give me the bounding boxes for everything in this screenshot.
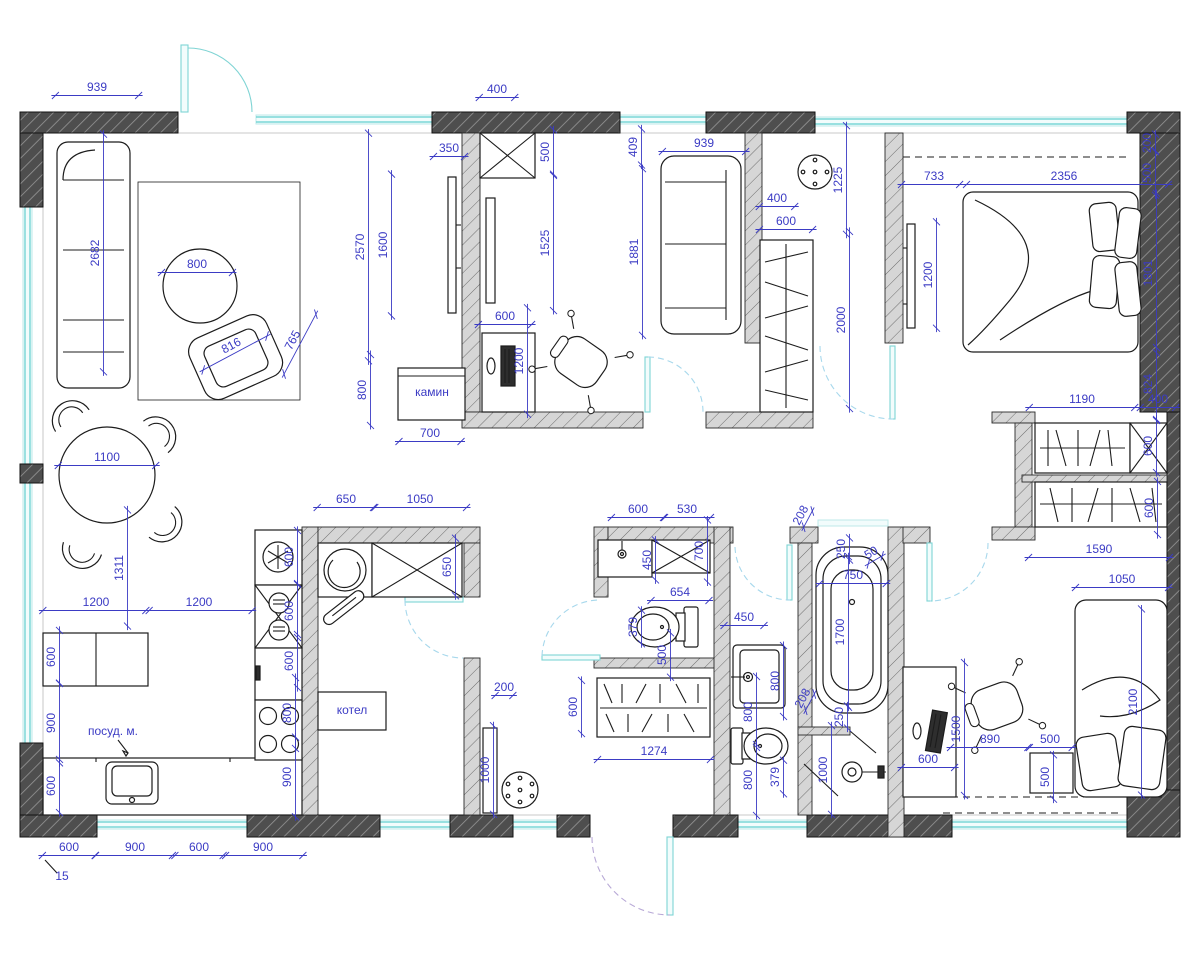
office-chair [528, 309, 635, 415]
svg-text:650: 650 [336, 492, 356, 506]
svg-text:400: 400 [767, 191, 787, 205]
bedroom1-door [820, 346, 895, 419]
svg-text:15: 15 [55, 869, 69, 883]
toilet1 [631, 607, 698, 647]
svg-text:700: 700 [420, 426, 440, 440]
svg-text:600: 600 [566, 697, 580, 717]
svg-text:379: 379 [768, 767, 782, 787]
svg-text:камин: камин [415, 385, 449, 399]
room-label: посуд. м. [88, 724, 138, 738]
dimension-label: 700 [395, 426, 465, 445]
dimension-label: 900 [91, 840, 179, 859]
utility-door [405, 597, 463, 658]
svg-text:409: 409 [626, 137, 640, 157]
svg-text:939: 939 [694, 136, 714, 150]
balcony-door [181, 45, 252, 112]
washing-machine [318, 543, 372, 597]
svg-text:800: 800 [355, 380, 369, 400]
double-bed [963, 192, 1142, 352]
dimension-label: 939 [658, 136, 749, 155]
svg-text:2100: 2100 [1126, 688, 1140, 715]
svg-text:2356: 2356 [1051, 169, 1078, 183]
dimension-label: 1050 [369, 492, 470, 511]
tv-panel-bedroom [903, 224, 915, 328]
dimension-label: 650 [313, 492, 379, 511]
svg-text:654: 654 [670, 585, 690, 599]
dimension-label: 900 [44, 679, 63, 767]
armchair [184, 310, 288, 404]
svg-text:530: 530 [677, 502, 697, 516]
dimension-label: 1590 [1025, 542, 1174, 561]
room-label: котел [337, 703, 367, 717]
svg-text:800: 800 [187, 257, 207, 271]
kitchen-counter [43, 758, 302, 815]
kitchen-island [43, 633, 148, 686]
dimension-label: 600 [755, 214, 816, 233]
dining-chair [149, 507, 190, 550]
dimension-label: 900 [219, 840, 307, 859]
svg-text:2570: 2570 [353, 233, 367, 260]
svg-text:1190: 1190 [1069, 392, 1095, 406]
svg-text:1200: 1200 [83, 595, 110, 609]
svg-text:800: 800 [741, 770, 755, 790]
dimension-label: 1190 [1025, 392, 1138, 411]
svg-text:750: 750 [843, 568, 863, 582]
svg-text:900: 900 [44, 713, 58, 733]
sofa2 [661, 156, 741, 334]
mouse2 [913, 723, 921, 739]
bedroom1-furniture [903, 157, 1142, 352]
room-label: камин [415, 385, 449, 399]
svg-text:1525: 1525 [538, 229, 552, 256]
living-room-furniture [45, 142, 300, 574]
svg-text:600: 600 [495, 309, 515, 323]
floor-plan-page: 93926828008167651100131112001200600900по… [0, 0, 1200, 966]
pillow [1117, 725, 1167, 790]
svg-text:800: 800 [741, 702, 755, 722]
svg-text:1100: 1100 [94, 450, 120, 464]
svg-text:450: 450 [640, 550, 654, 570]
svg-text:500: 500 [1140, 163, 1154, 183]
svg-text:600: 600 [59, 840, 79, 854]
svg-text:500: 500 [1040, 732, 1060, 746]
svg-text:200: 200 [1140, 133, 1154, 153]
svg-text:500: 500 [538, 142, 552, 162]
svg-text:2000: 2000 [834, 306, 848, 333]
svg-text:600: 600 [44, 647, 58, 667]
wardrobe2 [760, 240, 813, 412]
svg-text:600: 600 [1142, 498, 1156, 518]
dimension-label: 1200 [921, 218, 940, 332]
svg-text:939: 939 [87, 80, 107, 94]
svg-text:890: 890 [980, 732, 1000, 746]
dimension-label: 1525 [538, 171, 557, 314]
dimension-label: 1000 [816, 722, 835, 819]
pillow [1089, 255, 1120, 309]
svg-text:824: 824 [1141, 374, 1155, 394]
svg-text:1881: 1881 [627, 238, 641, 265]
dimension-label: 1200 [142, 595, 256, 614]
dining-chair [57, 542, 101, 573]
study-furniture [398, 133, 634, 420]
dimension-label: 500 [1024, 732, 1076, 751]
svg-text:1311: 1311 [112, 555, 126, 581]
svg-text:600: 600 [776, 214, 796, 228]
dimension-label: 600 [566, 676, 585, 737]
svg-text:900: 900 [280, 767, 294, 787]
utility-furniture [318, 543, 538, 813]
svg-text:1050: 1050 [407, 492, 434, 506]
dimension-label: 600 [474, 309, 535, 328]
svg-text:1200: 1200 [186, 595, 213, 609]
svg-text:250: 250 [834, 539, 848, 559]
wc2-door [735, 545, 792, 600]
svg-text:733: 733 [924, 169, 944, 183]
stove [255, 700, 302, 760]
mid-closet [597, 678, 710, 737]
dimension-label: 1311 [112, 506, 131, 630]
svg-text:208: 208 [790, 503, 812, 528]
dimension-label: 939 [51, 80, 142, 99]
dimension-label: 800 [355, 351, 374, 430]
svg-text:1500: 1500 [949, 715, 963, 742]
svg-text:600: 600 [189, 840, 209, 854]
svg-text:1000: 1000 [816, 756, 830, 783]
dimension-label: 2000 [834, 227, 853, 412]
svg-text:250: 250 [832, 707, 846, 727]
dimension-label: 2570 [353, 129, 372, 365]
dimension-label: 1225 [831, 122, 850, 239]
wc1-door [542, 600, 600, 660]
svg-text:400: 400 [1148, 392, 1168, 406]
dining-chair [143, 409, 183, 453]
svg-text:379: 379 [626, 617, 640, 637]
svg-text:200: 200 [494, 680, 514, 694]
svg-text:600: 600 [918, 752, 938, 766]
svg-text:600: 600 [44, 776, 58, 796]
dishwasher-leader [118, 740, 128, 756]
svg-text:600: 600 [282, 601, 296, 621]
dimension-label: 400 [475, 82, 518, 101]
svg-text:1600: 1600 [376, 231, 390, 258]
svg-text:1274: 1274 [641, 744, 668, 758]
svg-text:1590: 1590 [1086, 542, 1113, 556]
svg-text:900: 900 [125, 840, 145, 854]
svg-text:котел: котел [337, 703, 367, 717]
pillow [1075, 732, 1123, 792]
svg-text:800: 800 [280, 703, 294, 723]
svg-text:500: 500 [1038, 767, 1052, 787]
ceiling-light [798, 155, 832, 189]
dimension-label: 1881 [627, 165, 646, 340]
dimension-label: 1050 [1071, 572, 1172, 591]
svg-text:600: 600 [1141, 436, 1155, 456]
svg-text:1000: 1000 [478, 756, 492, 783]
single-bed [1075, 600, 1167, 797]
svg-text:350: 350 [439, 141, 459, 155]
shelf [486, 198, 495, 303]
wardrobe-x [480, 133, 535, 178]
dimension-label: 600 [607, 502, 668, 521]
svg-text:400: 400 [487, 82, 507, 96]
svg-text:1200: 1200 [921, 261, 935, 288]
dimension-label: 1600 [376, 170, 395, 320]
svg-text:600: 600 [282, 651, 296, 671]
tv-panel [448, 177, 461, 313]
svg-text:1225: 1225 [831, 166, 845, 193]
svg-text:2682: 2682 [88, 239, 102, 266]
dimension-label: 1200 [39, 595, 153, 614]
svg-text:1801: 1801 [1141, 259, 1155, 286]
svg-text:650: 650 [440, 557, 454, 577]
svg-text:посуд. м.: посуд. м. [88, 724, 138, 738]
ceiling-light-hall [502, 772, 538, 808]
svg-text:450: 450 [734, 610, 754, 624]
svg-text:600: 600 [282, 547, 296, 567]
dimension-label: 409 [626, 125, 645, 169]
wc2-furniture [731, 645, 788, 764]
svg-text:1050: 1050 [1109, 572, 1136, 586]
dimension-label: 200 [491, 680, 517, 699]
svg-text:1200: 1200 [512, 347, 526, 374]
dimension-label: 600 [38, 840, 99, 859]
dining-chair [45, 393, 89, 432]
mouse [487, 358, 495, 374]
svg-text:900: 900 [253, 840, 273, 854]
dimension-label: 1274 [594, 744, 715, 763]
dimension-label: 500 [538, 126, 557, 178]
floor-plan-drawing: 93926828008167651100131112001200600900по… [0, 0, 1200, 966]
desk [482, 333, 535, 412]
svg-text:1700: 1700 [833, 618, 847, 645]
svg-text:600: 600 [628, 502, 648, 516]
study-door [645, 357, 703, 412]
svg-text:700: 700 [692, 541, 706, 561]
bedroom2-door [927, 543, 988, 601]
svg-text:500: 500 [655, 645, 669, 665]
entry-door [592, 837, 673, 915]
dimension-label: 654 [647, 585, 713, 604]
room-label: 15 [55, 869, 69, 883]
dimension-label: 600 [168, 840, 229, 859]
toilet2 [731, 728, 788, 764]
svg-text:800: 800 [768, 671, 782, 691]
dining-table [59, 427, 155, 523]
